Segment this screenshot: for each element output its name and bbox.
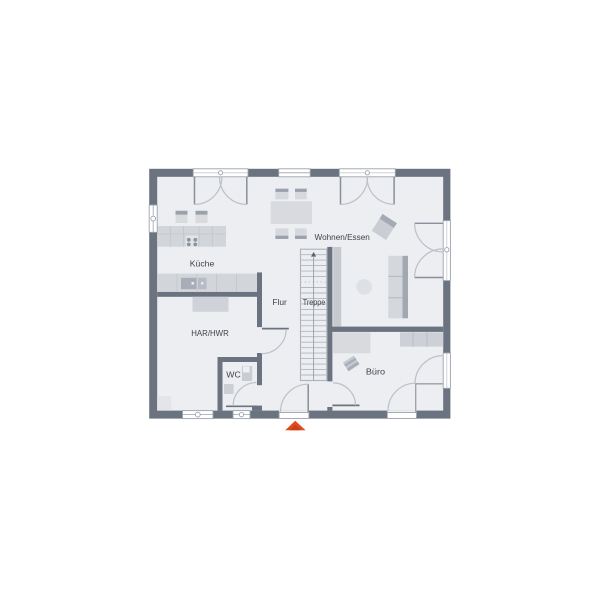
svg-text:Wohnen/Essen: Wohnen/Essen — [315, 232, 371, 242]
svg-text:Treppe: Treppe — [303, 297, 326, 307]
svg-text:HAR/HWR: HAR/HWR — [191, 328, 229, 338]
svg-text:Flur: Flur — [272, 297, 287, 307]
svg-text:Büro: Büro — [366, 367, 386, 377]
svg-text:WC: WC — [226, 369, 241, 379]
svg-text:Küche: Küche — [190, 259, 215, 269]
